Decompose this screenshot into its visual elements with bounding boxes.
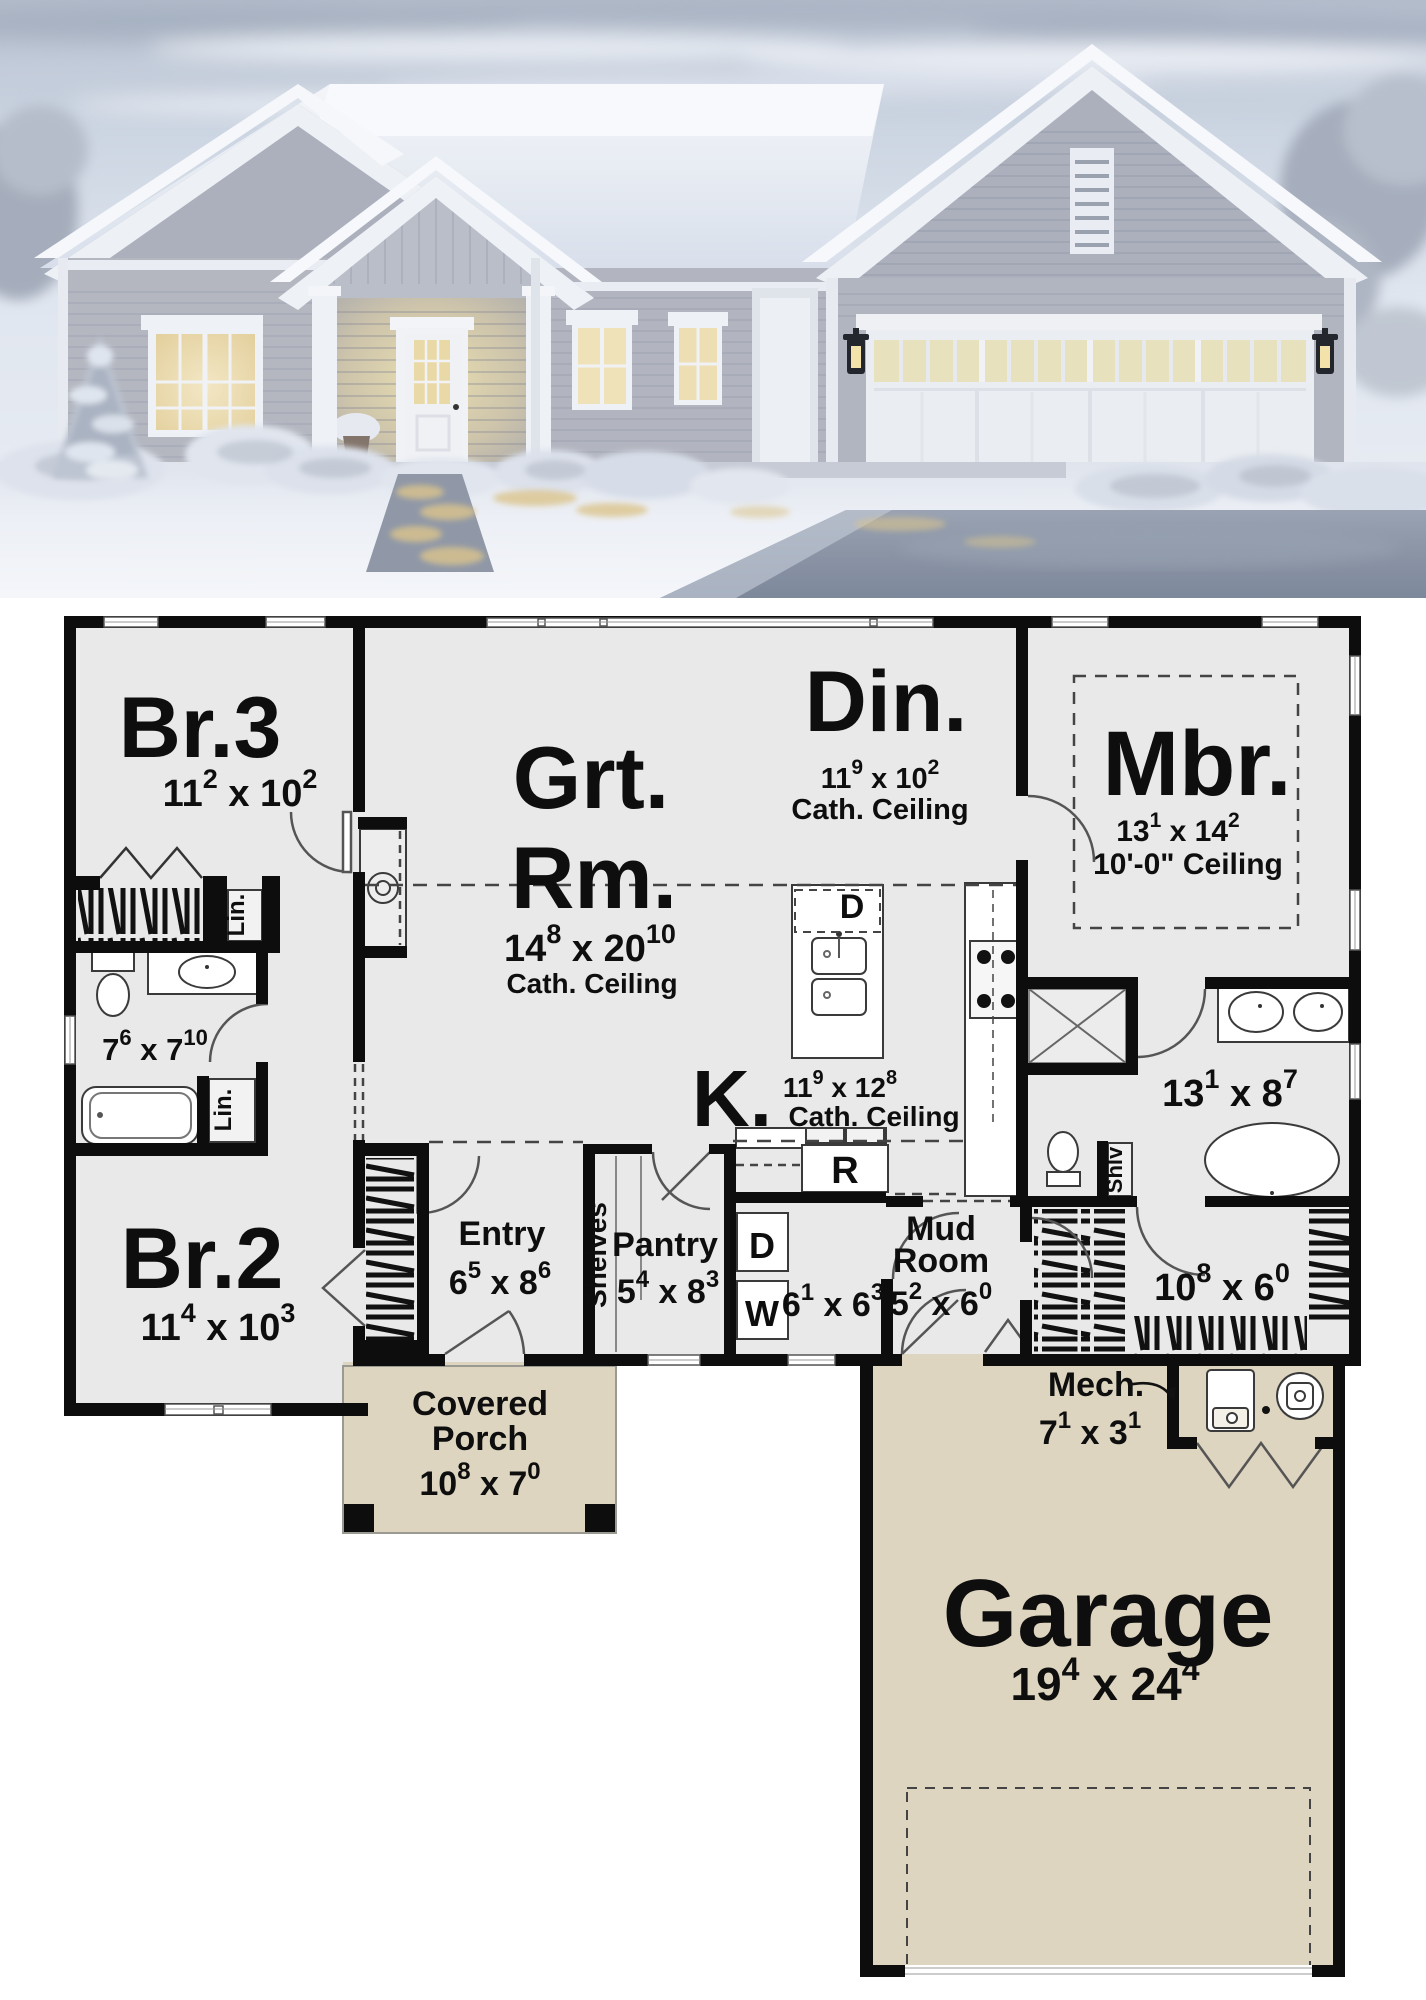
svg-text:Pantry: Pantry <box>612 1226 718 1264</box>
svg-text:Cath. Ceiling: Cath. Ceiling <box>506 968 677 999</box>
svg-text:Cath. Ceiling: Cath. Ceiling <box>791 794 968 826</box>
svg-text:10'-0" Ceiling: 10'-0" Ceiling <box>1093 848 1283 881</box>
svg-text:Din.: Din. <box>805 654 967 750</box>
svg-text:Mbr.: Mbr. <box>1102 713 1291 815</box>
svg-text:Garage: Garage <box>943 1560 1274 1667</box>
svg-text:Shelves: Shelves <box>581 1202 612 1308</box>
svg-text:D: D <box>749 1225 775 1266</box>
svg-text:Room: Room <box>893 1242 989 1280</box>
svg-text:Entry: Entry <box>459 1215 546 1253</box>
svg-text:R: R <box>831 1150 858 1192</box>
svg-text:194 x 244: 194 x 244 <box>1010 1651 1199 1710</box>
svg-text:Cath. Ceiling: Cath. Ceiling <box>788 1101 959 1132</box>
svg-text:65 x 86: 65 x 86 <box>449 1257 551 1302</box>
svg-text:Rm.: Rm. <box>511 828 677 927</box>
svg-text:Br.2: Br.2 <box>121 1211 284 1307</box>
svg-text:52 x 60: 52 x 60 <box>890 1278 992 1323</box>
svg-text:W: W <box>745 1293 779 1334</box>
svg-text:119 x 128: 119 x 128 <box>783 1067 897 1103</box>
svg-text:Porch: Porch <box>432 1420 528 1458</box>
svg-text:Br.3: Br.3 <box>119 680 282 776</box>
svg-text:71 x 31: 71 x 31 <box>1039 1407 1141 1452</box>
svg-text:D: D <box>840 888 865 926</box>
svg-text:Lin.: Lin. <box>210 1089 237 1132</box>
svg-text:Lin.: Lin. <box>223 894 250 937</box>
svg-text:54 x 83: 54 x 83 <box>617 1266 719 1311</box>
svg-text:Covered: Covered <box>412 1385 548 1423</box>
svg-text:131 x 142: 131 x 142 <box>1116 809 1239 848</box>
svg-text:K.: K. <box>692 1054 772 1143</box>
svg-text:Grt.: Grt. <box>513 728 669 827</box>
svg-text:Shlv: Shlv <box>1102 1146 1127 1193</box>
svg-text:61 x 63: 61 x 63 <box>782 1279 884 1324</box>
svg-text:108 x 70: 108 x 70 <box>419 1458 540 1503</box>
